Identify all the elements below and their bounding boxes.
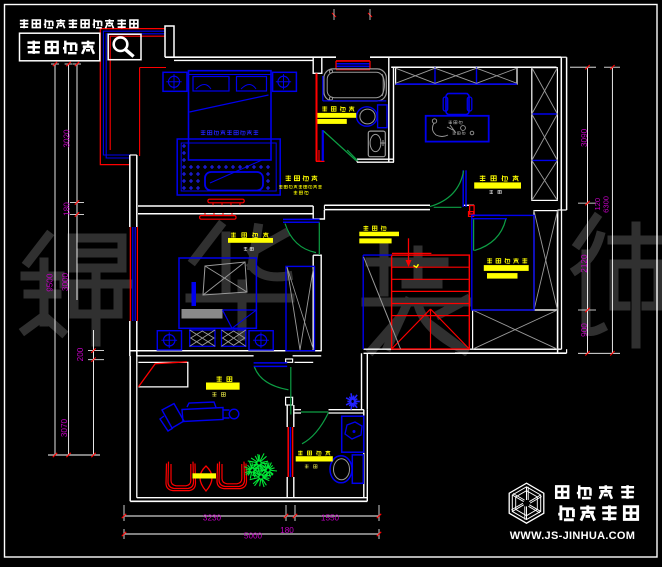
svg-text:3000: 3000: [61, 272, 70, 291]
svg-text:1550: 1550: [321, 514, 340, 523]
svg-text:180: 180: [63, 202, 72, 216]
svg-text:3230: 3230: [203, 514, 222, 523]
svg-text:180: 180: [280, 526, 294, 535]
svg-text:9500: 9500: [46, 273, 55, 292]
svg-text:3070: 3070: [60, 418, 69, 437]
svg-text:WWW.JS-JINHUA.COM: WWW.JS-JINHUA.COM: [510, 530, 635, 542]
svg-text:900: 900: [580, 323, 589, 337]
svg-text:3020: 3020: [63, 129, 72, 148]
svg-text:6300: 6300: [602, 196, 611, 213]
svg-text:2120: 2120: [580, 254, 589, 273]
svg-text:200: 200: [76, 347, 85, 361]
svg-text:3090: 3090: [580, 128, 589, 147]
svg-text:5000: 5000: [244, 532, 263, 541]
